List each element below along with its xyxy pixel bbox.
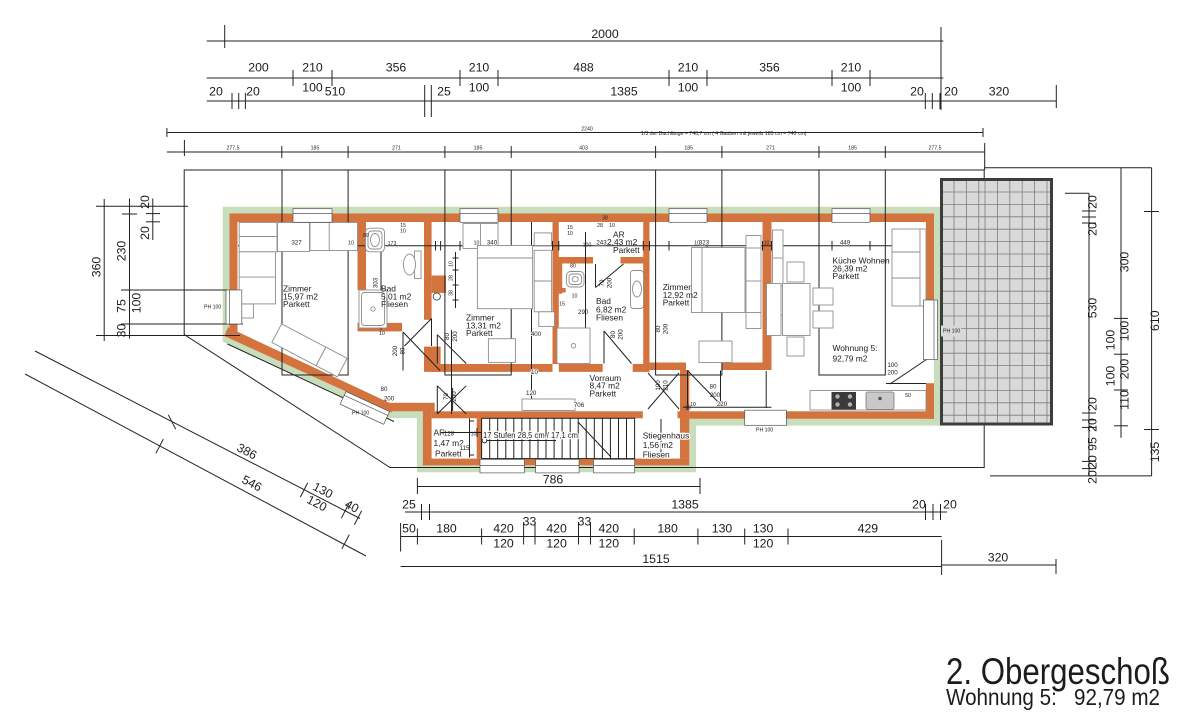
- svg-text:17 Stufen 28,5 cm / 17,1 cm: 17 Stufen 28,5 cm / 17,1 cm: [483, 430, 578, 440]
- svg-text:185: 185: [684, 146, 693, 152]
- svg-text:80: 80: [610, 331, 617, 338]
- svg-text:400: 400: [531, 331, 542, 338]
- svg-text:340: 340: [487, 240, 498, 247]
- svg-text:200: 200: [887, 370, 898, 377]
- svg-text:110: 110: [1118, 390, 1132, 410]
- svg-text:100: 100: [583, 243, 592, 249]
- svg-text:200: 200: [248, 61, 269, 75]
- svg-text:130: 130: [753, 522, 774, 536]
- svg-text:320: 320: [988, 551, 1009, 565]
- svg-text:20: 20: [1086, 195, 1100, 209]
- svg-text:530: 530: [1086, 298, 1100, 319]
- svg-text:20: 20: [209, 85, 223, 99]
- svg-text:PH 100: PH 100: [943, 329, 960, 335]
- svg-text:135: 135: [1148, 442, 1162, 463]
- svg-text:100: 100: [1104, 366, 1118, 387]
- svg-text:10: 10: [531, 369, 538, 376]
- svg-text:180: 180: [436, 522, 457, 536]
- svg-text:75: 75: [115, 299, 129, 313]
- svg-text:20: 20: [138, 195, 152, 209]
- svg-text:100: 100: [302, 81, 323, 95]
- svg-text:2240: 2240: [581, 127, 593, 133]
- svg-text:10: 10: [474, 240, 480, 246]
- svg-text:25: 25: [437, 85, 451, 99]
- svg-text:10: 10: [379, 331, 385, 337]
- svg-text:PH 100: PH 100: [756, 428, 773, 434]
- svg-text:1,56 m2: 1,56 m2: [643, 440, 674, 450]
- svg-text:25: 25: [402, 498, 416, 512]
- svg-text:786: 786: [543, 473, 564, 487]
- svg-text:80: 80: [570, 264, 576, 270]
- svg-text:Parkett: Parkett: [590, 388, 617, 398]
- svg-text:277,5: 277,5: [227, 146, 240, 152]
- svg-text:38: 38: [602, 216, 608, 222]
- svg-text:95: 95: [1086, 437, 1100, 451]
- svg-text:488: 488: [573, 61, 594, 75]
- svg-text:173: 173: [388, 241, 397, 247]
- svg-text:320: 320: [989, 85, 1010, 99]
- svg-text:360: 360: [90, 257, 104, 278]
- svg-text:323: 323: [699, 240, 710, 247]
- svg-text:100: 100: [655, 380, 662, 391]
- svg-text:Parkett: Parkett: [283, 299, 310, 309]
- svg-text:356: 356: [759, 61, 780, 75]
- svg-text:Fliesen: Fliesen: [381, 299, 408, 309]
- svg-text:120: 120: [546, 537, 567, 551]
- svg-text:Parkett: Parkett: [833, 271, 860, 281]
- svg-text:210: 210: [302, 61, 323, 75]
- svg-text:230: 230: [115, 241, 129, 262]
- svg-text:20: 20: [912, 498, 926, 512]
- svg-text:20: 20: [1086, 418, 1100, 432]
- svg-text:Wohnung 5:: Wohnung 5:: [833, 343, 878, 353]
- svg-text:Fliesen: Fliesen: [596, 313, 623, 323]
- svg-text:200: 200: [607, 277, 614, 288]
- svg-text:100: 100: [887, 362, 898, 369]
- svg-text:1385: 1385: [671, 498, 699, 512]
- svg-text:120: 120: [526, 390, 537, 397]
- svg-text:120: 120: [753, 537, 774, 551]
- svg-text:20: 20: [1086, 397, 1100, 411]
- svg-text:10: 10: [348, 240, 354, 246]
- svg-text:Parkett: Parkett: [435, 449, 462, 459]
- svg-text:429: 429: [858, 522, 879, 536]
- svg-text:Parkett: Parkett: [663, 298, 690, 308]
- svg-text:185: 185: [474, 146, 483, 152]
- svg-text:Parkett: Parkett: [613, 245, 640, 255]
- svg-text:200: 200: [452, 331, 459, 342]
- svg-text:185: 185: [311, 146, 320, 152]
- svg-text:180: 180: [657, 522, 678, 536]
- svg-text:290: 290: [578, 309, 589, 316]
- svg-text:120: 120: [493, 537, 514, 551]
- svg-text:33: 33: [578, 515, 592, 529]
- svg-text:70: 70: [599, 279, 606, 286]
- svg-text:30: 30: [115, 324, 129, 338]
- svg-text:38: 38: [449, 290, 455, 296]
- svg-text:10: 10: [567, 231, 573, 237]
- svg-text:200: 200: [663, 323, 670, 334]
- svg-text:271: 271: [392, 146, 401, 152]
- svg-text:20: 20: [1086, 222, 1100, 236]
- svg-text:10: 10: [694, 240, 700, 246]
- svg-text:10: 10: [572, 294, 578, 300]
- svg-text:92,79 m2: 92,79 m2: [833, 354, 868, 364]
- svg-text:356: 356: [386, 61, 407, 75]
- svg-text:Fliesen: Fliesen: [643, 450, 670, 460]
- svg-text:80: 80: [400, 347, 407, 354]
- svg-text:100: 100: [841, 81, 862, 95]
- svg-text:271: 271: [766, 146, 775, 152]
- svg-text:50: 50: [905, 393, 911, 399]
- svg-text:20: 20: [138, 226, 152, 240]
- svg-text:200: 200: [1118, 359, 1132, 380]
- svg-text:20: 20: [943, 498, 957, 512]
- svg-text:10: 10: [764, 240, 770, 246]
- svg-text:243: 243: [596, 240, 607, 247]
- svg-text:20: 20: [910, 85, 924, 99]
- svg-text:50: 50: [402, 522, 416, 536]
- svg-text:303: 303: [373, 277, 380, 288]
- svg-text:20: 20: [246, 85, 260, 99]
- svg-text:185: 185: [848, 146, 857, 152]
- svg-text:420: 420: [493, 522, 514, 536]
- svg-text:80: 80: [381, 386, 388, 393]
- svg-text:420: 420: [599, 522, 620, 536]
- svg-text:210: 210: [678, 61, 699, 75]
- svg-text:Wohnung 5: 92,79 m2: Wohnung 5: 92,79 m2: [946, 684, 1160, 710]
- svg-text:Parkett: Parkett: [466, 328, 493, 338]
- svg-text:PH 100: PH 100: [352, 411, 369, 417]
- svg-text:100: 100: [469, 81, 490, 95]
- svg-text:706: 706: [574, 402, 585, 409]
- svg-text:115: 115: [460, 445, 470, 452]
- svg-text:327: 327: [291, 240, 302, 247]
- svg-text:449: 449: [840, 240, 851, 247]
- svg-text:300: 300: [1118, 252, 1132, 273]
- svg-text:PH 100: PH 100: [204, 305, 221, 311]
- svg-text:200: 200: [451, 391, 458, 402]
- svg-text:80: 80: [444, 333, 451, 340]
- svg-text:33: 33: [523, 515, 537, 529]
- svg-text:20: 20: [944, 85, 958, 99]
- svg-text:210: 210: [841, 61, 862, 75]
- svg-text:28: 28: [449, 275, 455, 281]
- svg-text:200: 200: [710, 392, 721, 399]
- svg-text:200: 200: [384, 396, 395, 403]
- svg-text:210: 210: [469, 61, 490, 75]
- svg-text:100: 100: [678, 81, 699, 95]
- svg-text:20: 20: [1086, 470, 1100, 484]
- svg-text:210: 210: [663, 380, 670, 391]
- svg-text:28: 28: [597, 223, 603, 229]
- svg-text:130: 130: [712, 522, 733, 536]
- svg-text:100: 100: [130, 293, 144, 314]
- svg-text:100: 100: [1104, 330, 1118, 351]
- svg-text:10: 10: [400, 229, 406, 235]
- svg-text:10: 10: [449, 261, 455, 267]
- svg-text:70: 70: [443, 393, 450, 400]
- svg-text:20: 20: [1086, 455, 1100, 469]
- svg-text:2000: 2000: [591, 27, 619, 41]
- svg-text:403: 403: [579, 146, 588, 152]
- svg-text:120: 120: [599, 537, 620, 551]
- svg-text:510: 510: [325, 85, 346, 99]
- svg-text:100: 100: [1118, 321, 1132, 342]
- svg-text:610: 610: [1148, 310, 1162, 331]
- svg-text:200: 200: [618, 329, 625, 340]
- svg-text:80: 80: [363, 233, 369, 239]
- svg-text:200: 200: [392, 345, 399, 356]
- svg-text:1/3 der Dachlänge = 746,7 cm (: 1/3 der Dachlänge = 746,7 cm ( 4 Gauben …: [641, 131, 807, 137]
- svg-text:128: 128: [444, 431, 455, 438]
- svg-text:277,5: 277,5: [929, 146, 942, 152]
- svg-text:1385: 1385: [610, 85, 638, 99]
- svg-text:420: 420: [546, 522, 567, 536]
- svg-text:1515: 1515: [642, 552, 670, 566]
- svg-text:80: 80: [655, 325, 662, 332]
- svg-text:80: 80: [710, 384, 717, 391]
- svg-text:10: 10: [609, 223, 615, 229]
- svg-text:Stiegenhaus: Stiegenhaus: [643, 431, 690, 441]
- svg-text:15: 15: [559, 302, 565, 308]
